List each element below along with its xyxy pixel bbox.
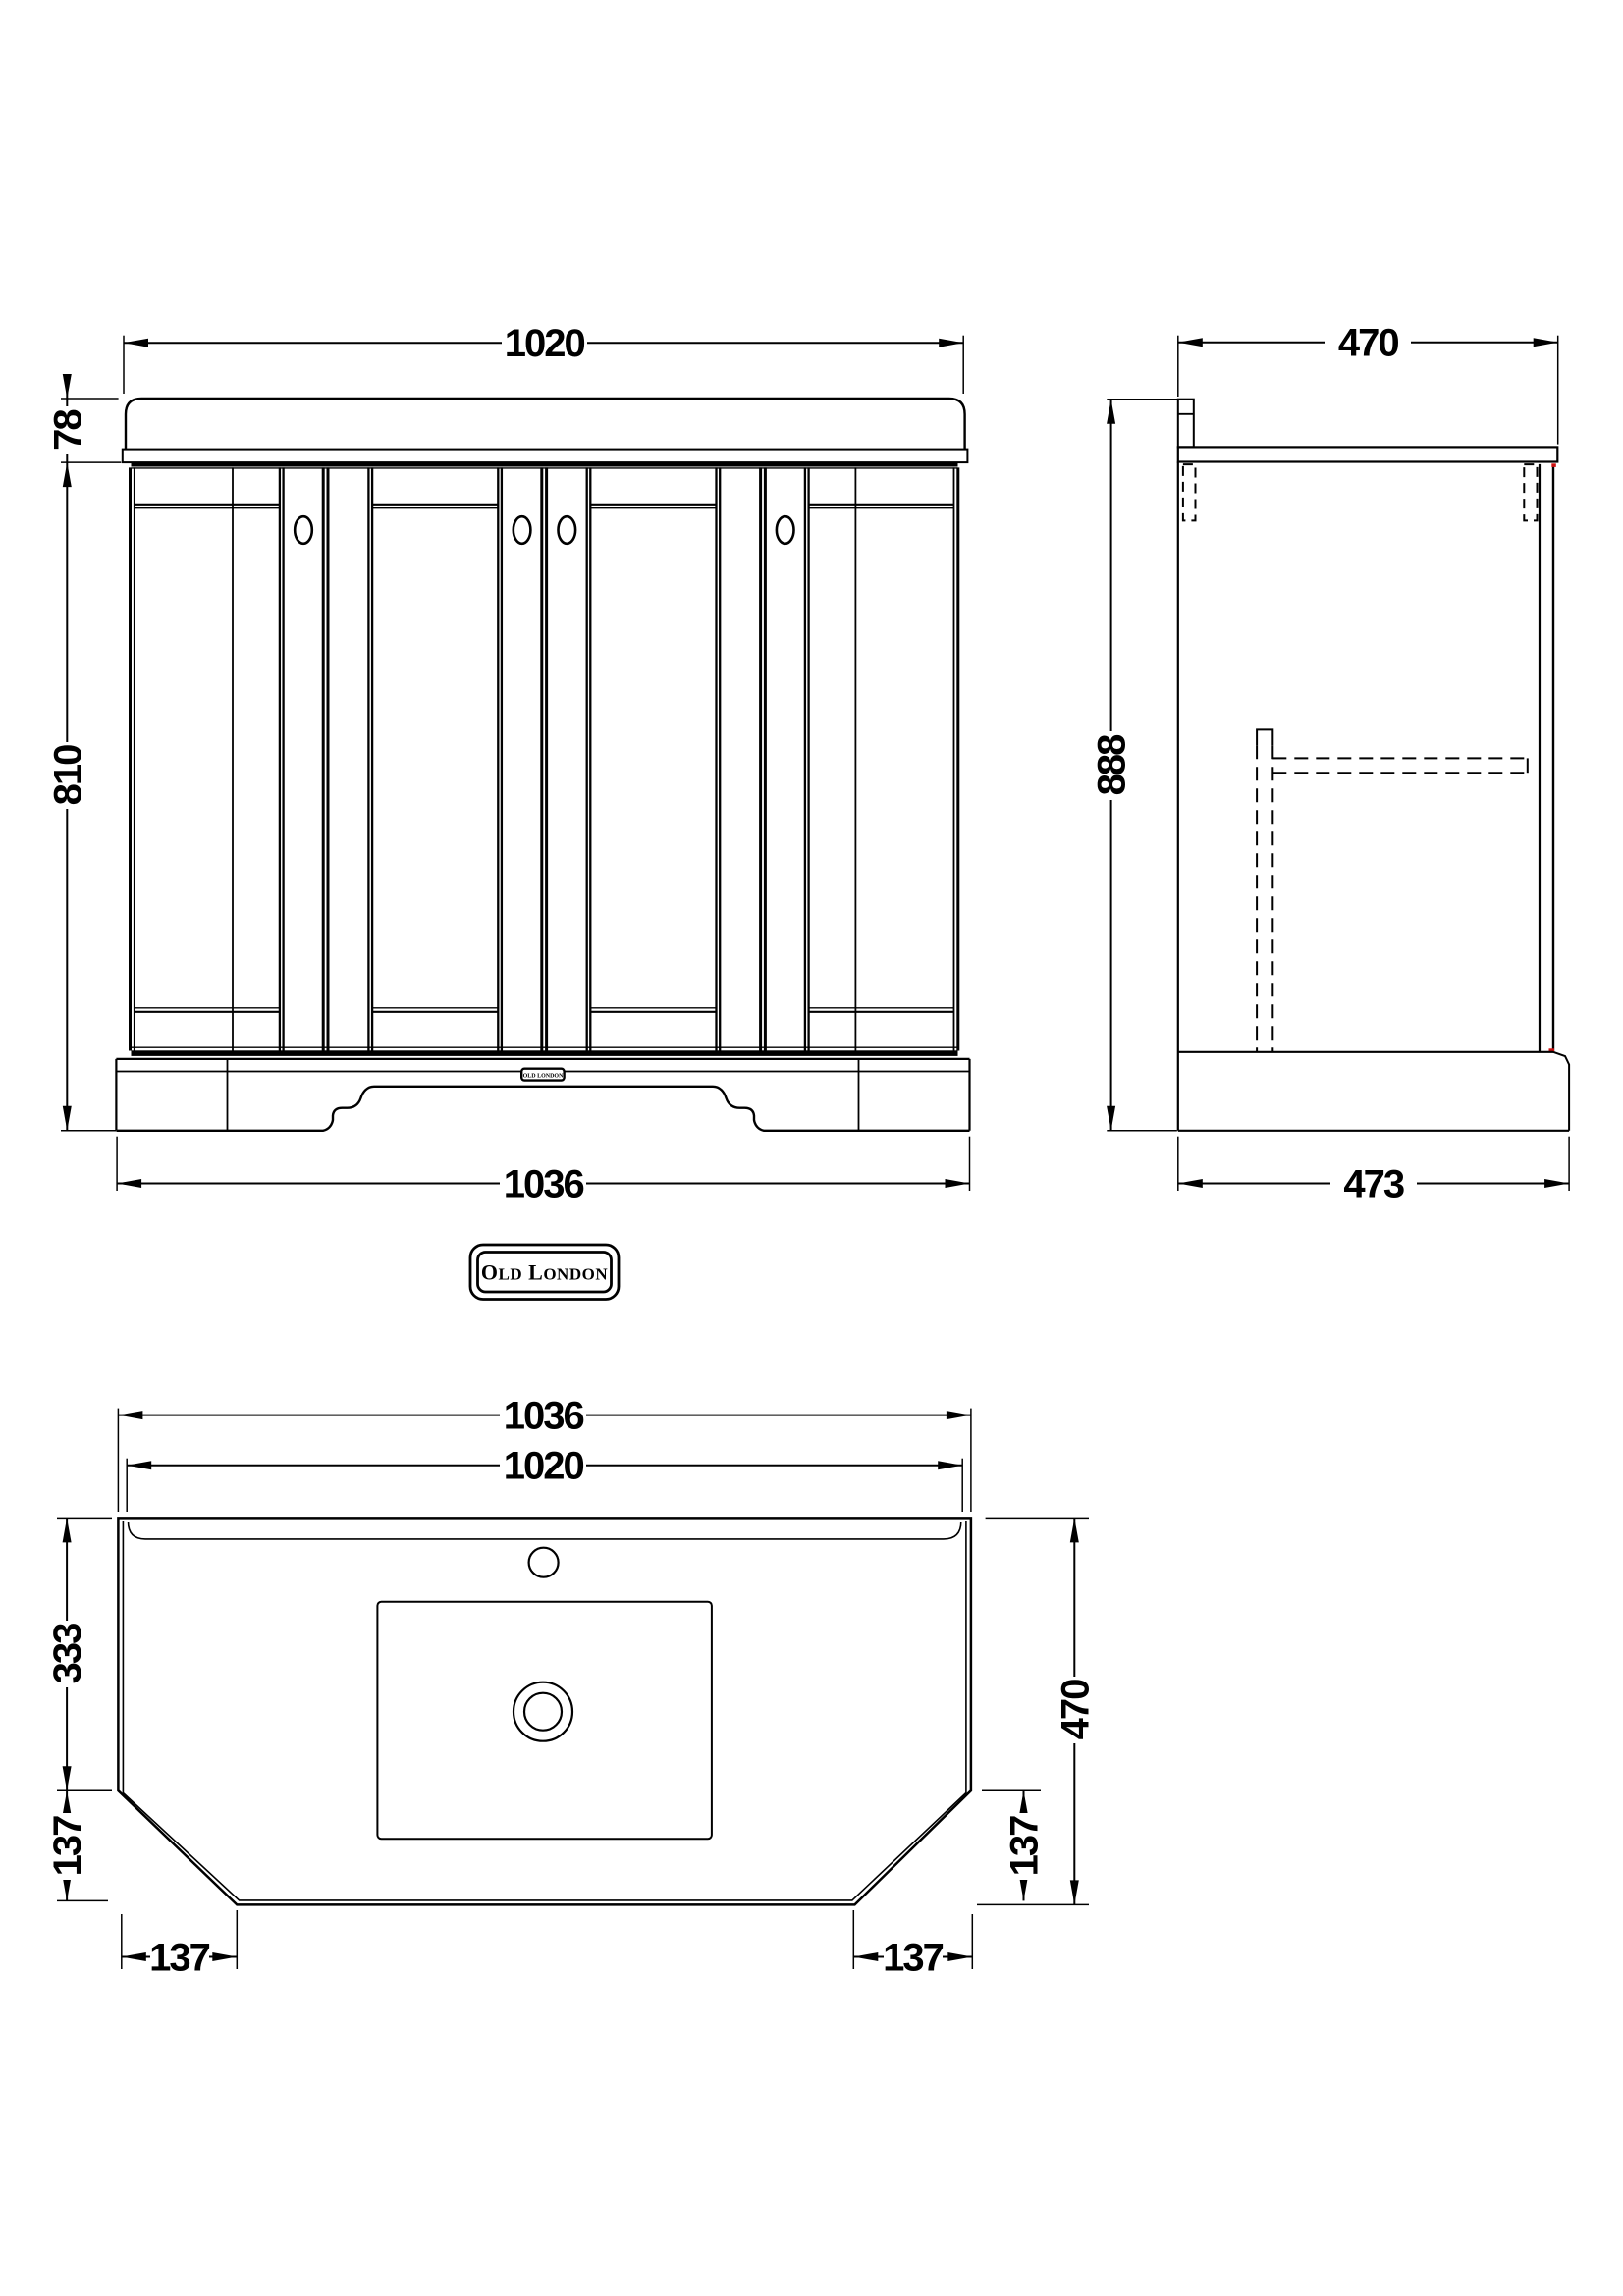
svg-text:470: 470 xyxy=(1054,1680,1097,1739)
svg-text:473: 473 xyxy=(1343,1163,1403,1206)
svg-text:137: 137 xyxy=(149,1937,209,1980)
svg-text:888: 888 xyxy=(1091,734,1134,795)
svg-text:1020: 1020 xyxy=(504,1445,584,1488)
svg-text:137: 137 xyxy=(1003,1816,1047,1876)
svg-text:1036: 1036 xyxy=(504,1395,584,1438)
svg-text:137: 137 xyxy=(46,1816,89,1876)
svg-text:137: 137 xyxy=(883,1937,943,1980)
svg-text:810: 810 xyxy=(46,745,89,805)
svg-text:1036: 1036 xyxy=(504,1163,584,1206)
svg-text:470: 470 xyxy=(1338,322,1398,365)
svg-text:1020: 1020 xyxy=(505,322,585,365)
svg-text:OLD LONDON: OLD LONDON xyxy=(523,1074,565,1080)
svg-text:333: 333 xyxy=(46,1624,89,1683)
svg-text:78: 78 xyxy=(46,409,89,451)
